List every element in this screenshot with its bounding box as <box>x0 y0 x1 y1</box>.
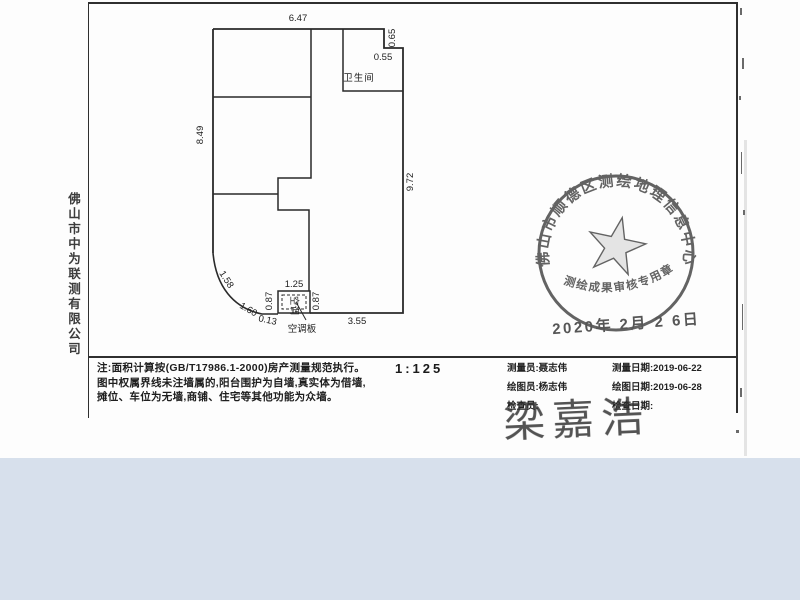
svg-text:测绘成果审核专用章: 测绘成果审核专用章 <box>561 260 678 301</box>
company-name-vertical: 佛山市中为联测有限公司 <box>64 192 83 357</box>
dim-step-width: 0.55 <box>374 52 393 63</box>
room-label-bathroom: 卫生间 <box>343 72 375 84</box>
dim-left: 8.49 <box>195 126 206 145</box>
ac-panel-label: 空调板 <box>288 323 317 335</box>
scanned-document: 佛山市中为联测有限公司 6.47 0.65 0.55 卫生间 8.49 9.72… <box>0 0 800 458</box>
interior-walls <box>213 29 403 291</box>
dim-top: 6.47 <box>289 13 308 24</box>
dim-box-left: 0.87 <box>264 292 275 311</box>
dim-box-top: 1.25 <box>285 279 304 290</box>
notes-block: 注:面积计算按(GB/T17986.1-2000)房产测量规范执行。 图中权属界… <box>97 361 387 405</box>
note-line-2: 图中权属界线未注墙属的,阳台围护为自墙,真实体为借墙, <box>97 376 387 391</box>
bottom-blue-band <box>0 458 800 600</box>
scan-edge-strip <box>744 140 747 456</box>
dim-box-right: 0.87 <box>311 292 322 311</box>
dim-arc-end: 0.13 <box>257 313 277 328</box>
stamp-bottom-text: 测绘成果审核专用章 <box>561 260 678 301</box>
official-stamp: 佛山市顺德区测绘地理信息中心 测绘成果审核专用章 2020年 2月 2 6日 <box>528 165 704 365</box>
frame-right-border <box>736 2 738 413</box>
note-line-1: 注:面积计算按(GB/T17986.1-2000)房产测量规范执行。 <box>97 361 387 376</box>
note-line-3: 摊位、车位为无墙,商铺、住宅等其他功能为众墙。 <box>97 390 387 405</box>
scale-label: 1:125 <box>395 361 443 376</box>
frame-top-border <box>88 2 737 4</box>
dim-bottom: 3.55 <box>348 316 367 327</box>
dim-step-height: 0.65 <box>387 29 398 48</box>
dim-right: 9.72 <box>405 173 416 192</box>
wall-outline <box>213 29 403 313</box>
floorplan-drawing: 6.47 0.65 0.55 卫生间 8.49 9.72 1.58 1.60 0… <box>185 5 435 350</box>
inspector-signature: 梁嘉浩 <box>502 383 652 450</box>
ac-inner-label: 空调 <box>288 296 300 315</box>
star-icon <box>583 212 650 277</box>
dim-arc-lower: 1.60 <box>237 300 259 319</box>
